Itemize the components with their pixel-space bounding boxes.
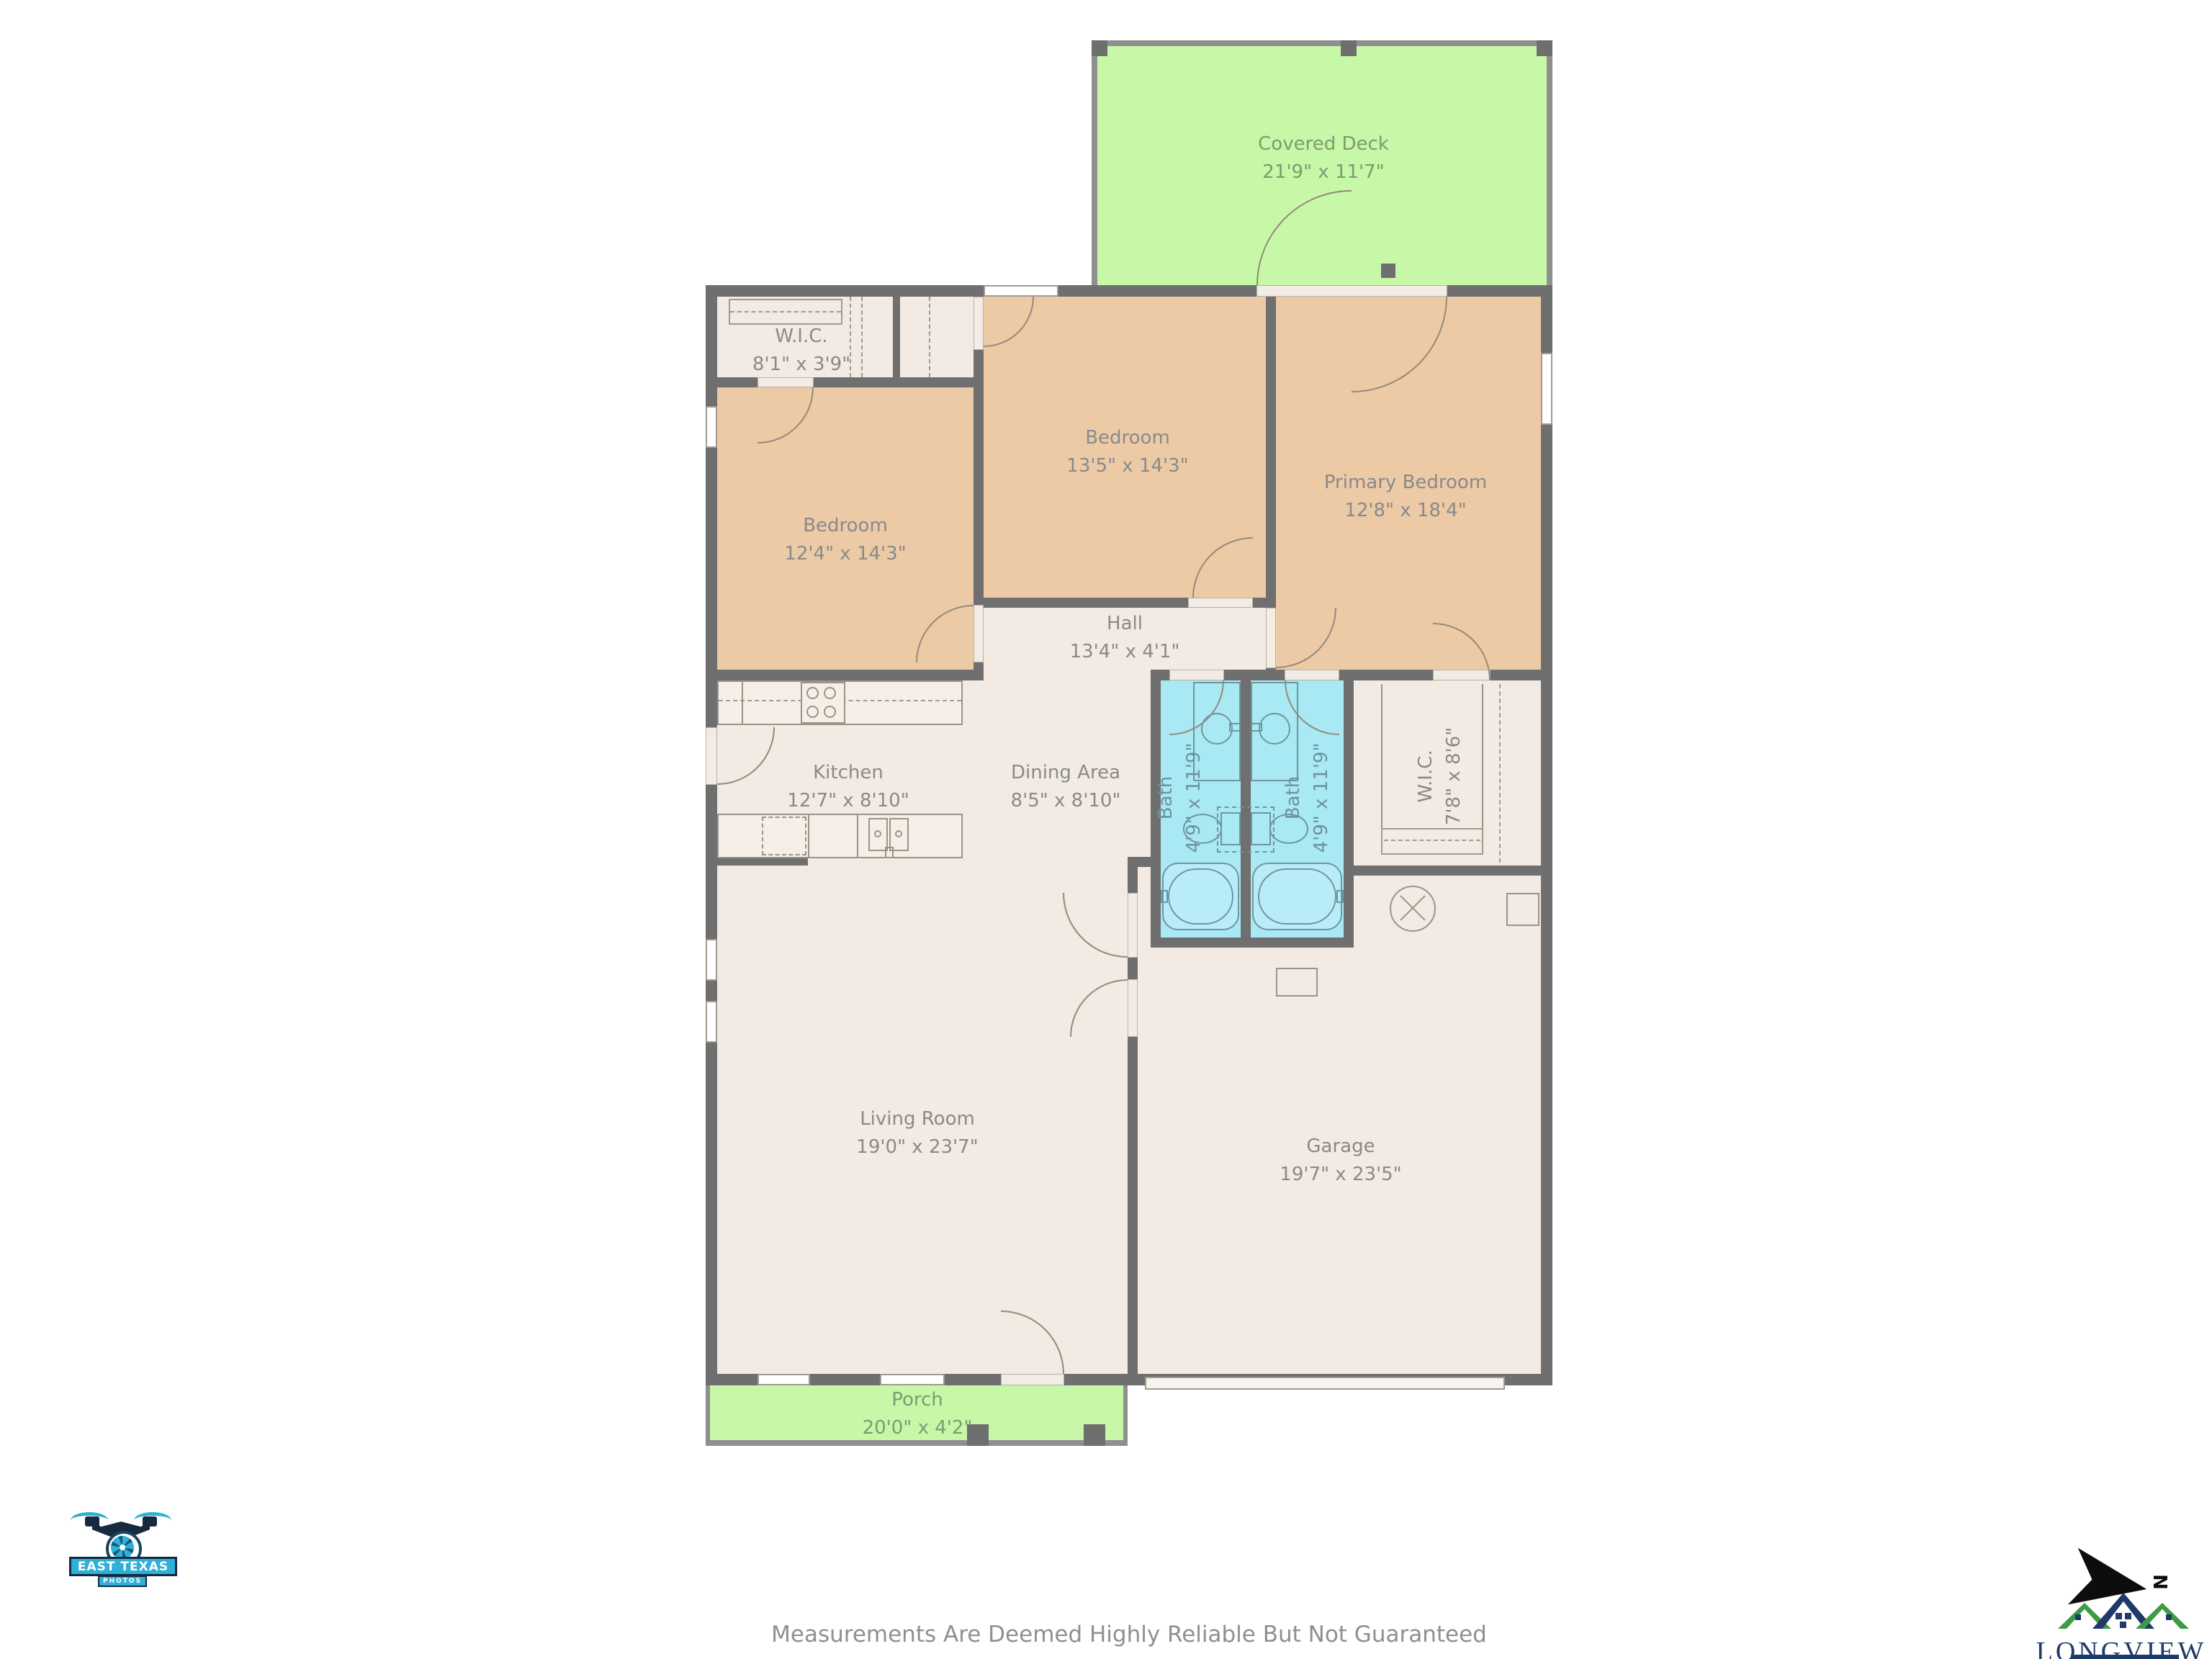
room-name: Primary Bedroom bbox=[1324, 469, 1487, 497]
room-dims: 21'9" x 11'7" bbox=[1258, 158, 1389, 186]
room-dims: 7'8" x 8'6" bbox=[1440, 727, 1468, 825]
room-dims: 12'7" x 8'10" bbox=[787, 787, 909, 815]
window-bedroom-mid-top bbox=[984, 285, 1058, 297]
window-living-left-1 bbox=[706, 939, 717, 981]
room-label-bath-right: Bath 4'9" x 11'9" bbox=[1280, 743, 1336, 853]
stove-burner bbox=[824, 706, 836, 718]
room-dims: 12'8" x 18'4" bbox=[1324, 497, 1487, 525]
room-label-kitchen: Kitchen 12'7" x 8'10" bbox=[787, 759, 909, 815]
attic-access bbox=[1276, 968, 1318, 997]
room-label-primary-bedroom: Primary Bedroom 12'8" x 18'4" bbox=[1324, 469, 1487, 525]
bathtub-basin bbox=[1258, 868, 1336, 925]
kitchen-counter-divider bbox=[742, 680, 743, 725]
photographer-logo: EAST TEXAS PHOTOS bbox=[65, 1509, 187, 1596]
room-dims: 13'5" x 14'3" bbox=[1066, 452, 1188, 480]
tub-faucet bbox=[1161, 890, 1168, 903]
wic-right-rod bbox=[1499, 684, 1501, 863]
room-label-wic-right: W.I.C. 7'8" x 8'6" bbox=[1412, 727, 1468, 825]
wall-wic-right-bottom bbox=[1344, 866, 1541, 876]
wall-bath-bottom bbox=[1151, 938, 1354, 948]
deck-post bbox=[1092, 40, 1107, 56]
dishwasher bbox=[762, 817, 806, 855]
room-dims: 20'0" x 4'2" bbox=[863, 1414, 973, 1442]
wic-top-shelf-rod bbox=[730, 311, 841, 313]
porch-edge-left bbox=[706, 1385, 710, 1446]
room-label-dining: Dining Area 8'5" x 8'10" bbox=[1011, 759, 1121, 815]
room-label-covered-deck: Covered Deck 21'9" x 11'7" bbox=[1258, 130, 1389, 186]
tub-faucet bbox=[1336, 890, 1344, 903]
wic-top-rod bbox=[861, 297, 863, 377]
door-opening-bath-right bbox=[1285, 670, 1339, 680]
room-dims: 4'9" x 11'9" bbox=[1180, 743, 1208, 853]
stove bbox=[801, 682, 845, 724]
room-label-bedroom-left: Bedroom 12'4" x 14'3" bbox=[784, 512, 906, 568]
roof-window-icon bbox=[2116, 1613, 2122, 1619]
room-label-hall: Hall 13'4" x 4'1" bbox=[1070, 610, 1180, 666]
door-opening-bedroom-left bbox=[974, 605, 984, 662]
room-label-porch: Porch 20'0" x 4'2" bbox=[863, 1386, 973, 1442]
room-name: Bath bbox=[1152, 743, 1180, 853]
disclaimer-text: Measurements Are Deemed Highly Reliable … bbox=[771, 1622, 1487, 1647]
photographer-logo-banner: EAST TEXAS bbox=[69, 1557, 177, 1576]
room-label-bedroom-mid: Bedroom 13'5" x 14'3" bbox=[1066, 424, 1188, 480]
roof-window-icon bbox=[2166, 1614, 2172, 1620]
room-dims: 8'5" x 8'10" bbox=[1011, 787, 1121, 815]
room-dims: 8'1" x 3'9" bbox=[752, 351, 850, 379]
sink-drain bbox=[874, 830, 881, 837]
north-label: N bbox=[2149, 1574, 2170, 1590]
wic-right-shelf bbox=[1381, 828, 1483, 855]
door-opening-bath-left bbox=[1169, 670, 1224, 680]
camera-aperture-center-icon bbox=[120, 1545, 125, 1550]
roof-window-icon bbox=[2075, 1614, 2081, 1620]
hvac-unit bbox=[1506, 893, 1539, 926]
deck-post bbox=[1381, 264, 1395, 278]
bath-faucet bbox=[1229, 723, 1241, 732]
room-name: Bedroom bbox=[1066, 424, 1188, 452]
porch-post bbox=[1084, 1424, 1105, 1446]
kitchen-faucet bbox=[885, 847, 894, 858]
kitchen-counter-bottom bbox=[717, 814, 963, 858]
wall-exterior-right bbox=[1541, 285, 1552, 1385]
door-opening-garage-2 bbox=[1128, 979, 1138, 1037]
window-living-left-2 bbox=[706, 1001, 717, 1043]
room-label-living: Living Room 19'0" x 23'7" bbox=[856, 1105, 978, 1161]
wall-bath-wic-divider bbox=[1344, 670, 1354, 948]
bath-sink bbox=[1259, 713, 1290, 745]
toilet-tank bbox=[1220, 812, 1241, 845]
porch-edge-right bbox=[1123, 1385, 1128, 1446]
door-opening-wic-top bbox=[757, 377, 814, 387]
floor-plan: Covered Deck 21'9" x 11'7" W.I.C. 8'1" x… bbox=[0, 0, 2212, 1659]
door-opening-front bbox=[1001, 1374, 1064, 1385]
wic-right-shelf-rod bbox=[1384, 840, 1480, 841]
stove-burner bbox=[806, 706, 819, 718]
sink-drain bbox=[895, 830, 902, 837]
room-label-wic-top: W.I.C. 8'1" x 3'9" bbox=[752, 323, 850, 379]
photographer-logo-sub-banner: PHOTOS bbox=[98, 1575, 147, 1587]
room-name: Porch bbox=[863, 1386, 973, 1414]
door-opening-closet bbox=[974, 297, 984, 350]
room-name: Covered Deck bbox=[1258, 130, 1389, 158]
room-dims: 19'0" x 23'7" bbox=[856, 1133, 978, 1161]
window-living-front-2 bbox=[880, 1374, 945, 1385]
toilet-tank bbox=[1251, 812, 1271, 845]
roofline-icon bbox=[2136, 1603, 2189, 1629]
room-dims: 4'9" x 11'9" bbox=[1308, 743, 1336, 853]
room-name: Bedroom bbox=[784, 512, 906, 540]
stove-burner bbox=[824, 687, 836, 699]
garage-door bbox=[1145, 1377, 1505, 1390]
room-name: W.I.C. bbox=[1412, 727, 1440, 825]
door-opening-kitchen-side bbox=[706, 727, 717, 785]
room-name: Dining Area bbox=[1011, 759, 1121, 787]
bathtub-basin bbox=[1168, 868, 1233, 925]
roof-window-icon bbox=[2120, 1622, 2126, 1628]
room-name: Bath bbox=[1280, 743, 1308, 853]
window-bedroom-left bbox=[706, 406, 717, 448]
room-name: W.I.C. bbox=[752, 323, 850, 351]
hall-closet-rod bbox=[929, 297, 930, 377]
room-dims: 19'7" x 23'5" bbox=[1280, 1161, 1401, 1189]
room-label-bath-left: Bath 4'9" x 11'9" bbox=[1152, 743, 1208, 853]
window-primary-right bbox=[1541, 353, 1552, 425]
realtor-logo: N LONGVIEW AREA ASSOCIATION OF REALTORS® bbox=[2031, 1548, 2212, 1659]
deck-rail-left bbox=[1092, 40, 1097, 288]
deck-post bbox=[1537, 40, 1552, 56]
wall-kitchen-top bbox=[706, 670, 984, 680]
deck-post bbox=[1341, 40, 1357, 56]
photographer-logo-subtext: PHOTOS bbox=[103, 1578, 142, 1585]
kitchen-counter-divider bbox=[857, 814, 858, 858]
door-opening-deck bbox=[1256, 285, 1447, 297]
deck-rail-top bbox=[1092, 40, 1552, 46]
room-name: Garage bbox=[1280, 1133, 1401, 1161]
door-opening-primary bbox=[1266, 608, 1276, 668]
door-opening-garage-1 bbox=[1128, 893, 1138, 958]
roof-window-icon bbox=[2125, 1613, 2131, 1619]
room-name: Kitchen bbox=[787, 759, 909, 787]
photographer-logo-text: EAST TEXAS bbox=[78, 1560, 168, 1574]
stove-burner bbox=[806, 687, 819, 699]
door-opening-bedroom-mid bbox=[1188, 598, 1253, 608]
bath-faucet bbox=[1251, 723, 1262, 732]
deck-rail-right bbox=[1547, 40, 1552, 288]
realtor-logo-bar bbox=[2071, 1655, 2179, 1659]
room-dims: 13'4" x 4'1" bbox=[1070, 638, 1180, 666]
wall-wic-closet-divider bbox=[893, 297, 900, 377]
room-label-garage: Garage 19'7" x 23'5" bbox=[1280, 1133, 1401, 1189]
room-name: Living Room bbox=[856, 1105, 978, 1133]
kitchen-counter-divider bbox=[808, 814, 809, 858]
window-living-front-1 bbox=[757, 1374, 810, 1385]
bath-sink bbox=[1201, 713, 1233, 745]
room-name: Hall bbox=[1070, 610, 1180, 638]
room-dims: 12'4" x 14'3" bbox=[784, 540, 906, 568]
wall-exterior-left bbox=[706, 285, 717, 1385]
wall-wic-top-bottom bbox=[706, 377, 979, 387]
